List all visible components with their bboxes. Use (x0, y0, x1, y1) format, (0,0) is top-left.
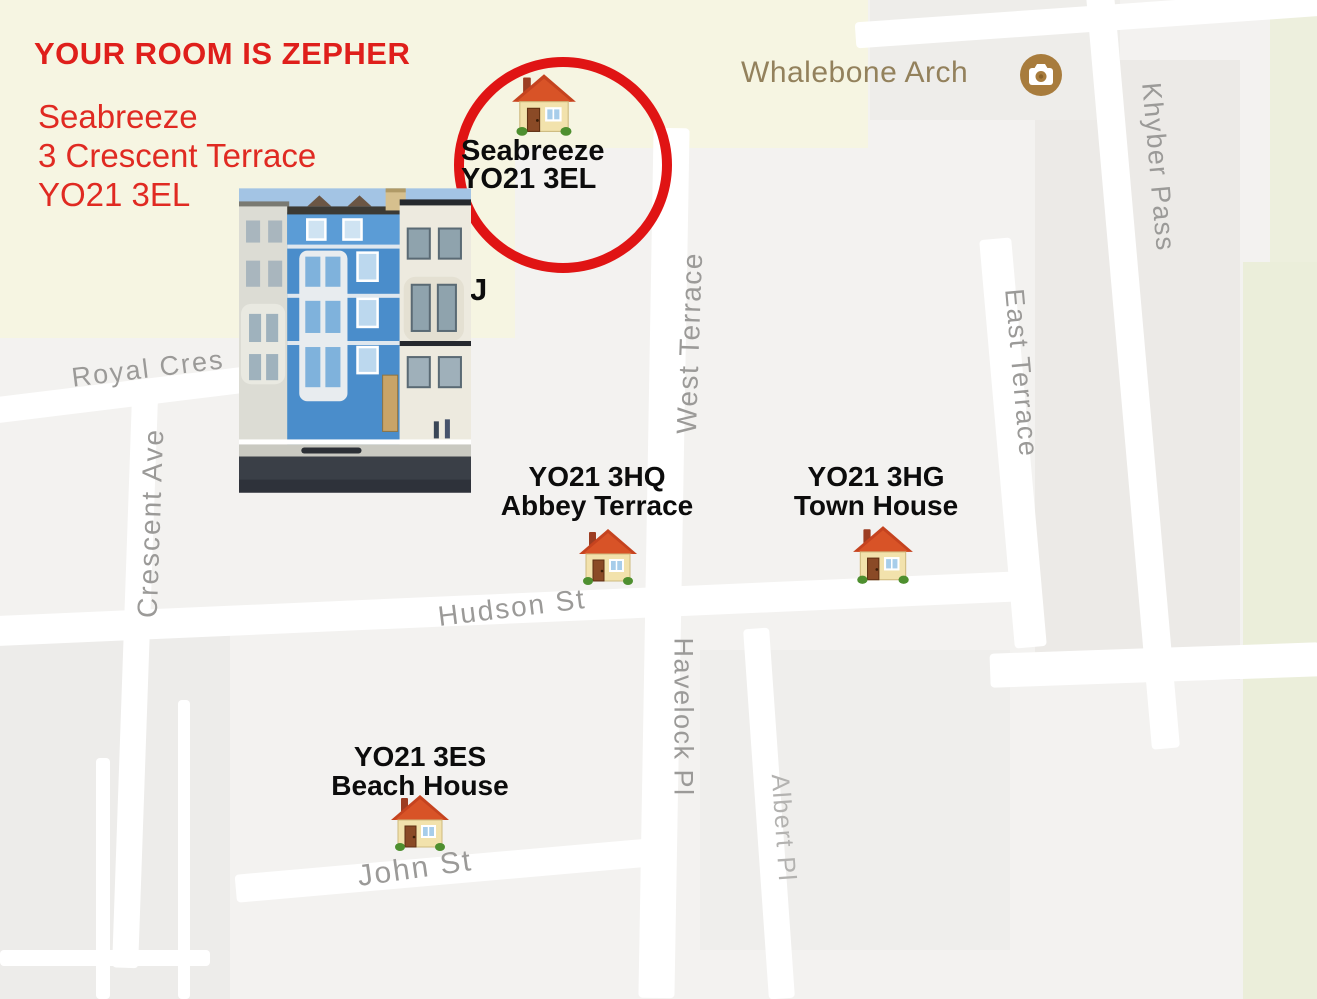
map-green-area (1270, 0, 1317, 262)
address-block: Seabreeze 3 Crescent Terrace YO21 3EL (38, 97, 316, 214)
street-label-west-terrace: West Terrace (671, 252, 709, 435)
house-icon[interactable] (576, 527, 640, 587)
map-green-area (1243, 262, 1317, 999)
house-icon[interactable] (850, 524, 916, 586)
road-minor (0, 950, 210, 966)
marker-label-abbey-terrace: YO21 3HQ Abbey Terrace (447, 462, 747, 520)
marker-name: Town House (726, 491, 1026, 520)
marker-postcode: YO21 3HQ (447, 462, 747, 491)
address-line: 3 Crescent Terrace (38, 136, 316, 175)
marker-postcode: YO21 3ES (270, 742, 570, 771)
house-icon[interactable] (388, 792, 452, 854)
marker-name: Seabreeze (461, 137, 605, 165)
seabreeze-photo (239, 187, 471, 494)
street-label-hudson-st: Hudson St (436, 583, 588, 633)
street-label-havelock-pl: Havelock Pl (668, 637, 699, 796)
marker-postcode: YO21 3EL (461, 165, 605, 193)
partial-marker-text: J (470, 272, 487, 308)
poi-label-whalebone-arch[interactable]: Whalebone Arch (741, 56, 968, 90)
room-headline: YOUR ROOM IS ZEPHER (34, 36, 410, 72)
map-canvas: Royal Cres Crescent Ave West Terrace Eas… (0, 0, 1317, 999)
house-icon[interactable] (508, 72, 580, 138)
marker-postcode: YO21 3HG (726, 462, 1026, 491)
street-label-crescent-ave: Crescent Ave (132, 427, 171, 618)
address-line: Seabreeze (38, 97, 316, 136)
address-line: YO21 3EL (38, 175, 316, 214)
map-block (700, 650, 1010, 950)
marker-label-seabreeze: Seabreeze YO21 3EL (461, 137, 605, 193)
marker-name: Abbey Terrace (447, 491, 747, 520)
marker-label-town-house: YO21 3HG Town House (726, 462, 1026, 520)
camera-icon[interactable] (1018, 52, 1064, 98)
